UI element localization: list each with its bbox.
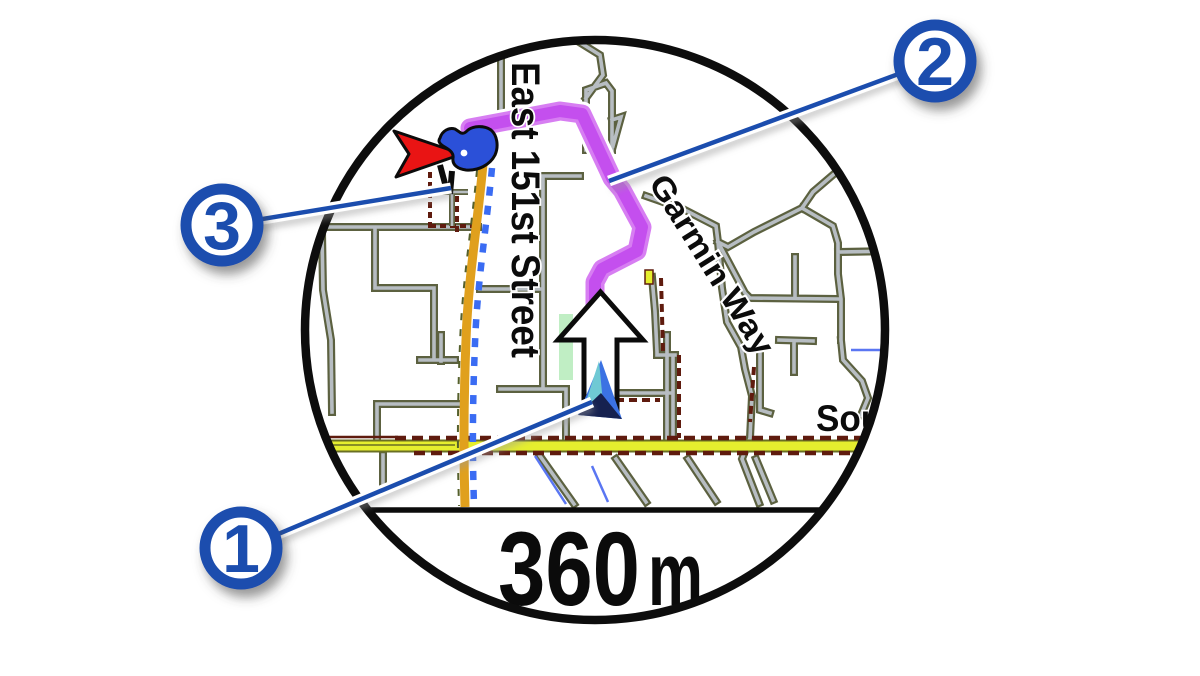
svg-text:1: 1: [222, 511, 260, 587]
svg-text:2: 2: [916, 24, 954, 100]
svg-text:3: 3: [203, 188, 241, 264]
svg-text:East 151st Street: East 151st Street: [503, 62, 547, 358]
